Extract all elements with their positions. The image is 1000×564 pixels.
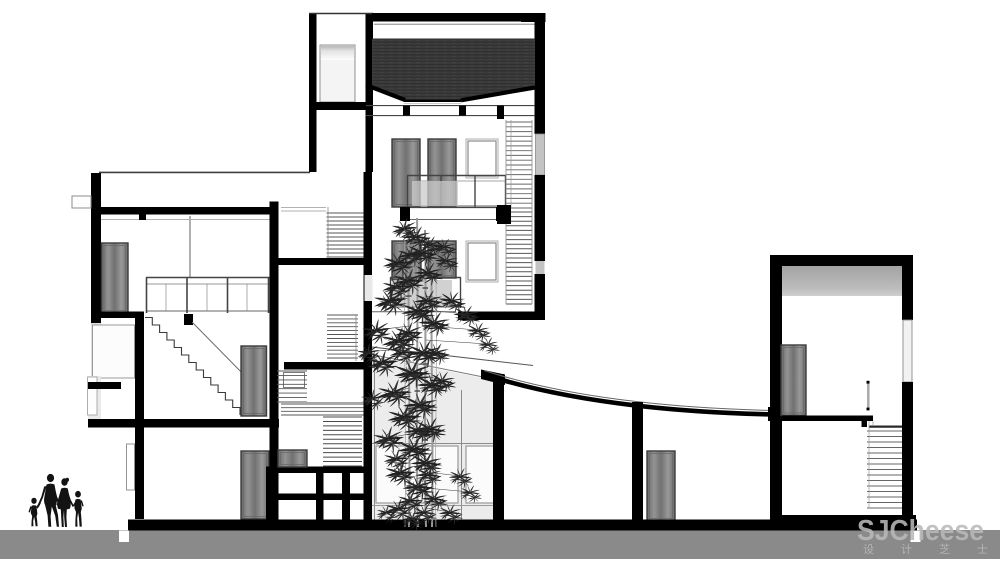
svg-text:设计芝士: 设计芝士 [863,543,1000,556]
svg-text:SJCheese: SJCheese [857,515,984,547]
